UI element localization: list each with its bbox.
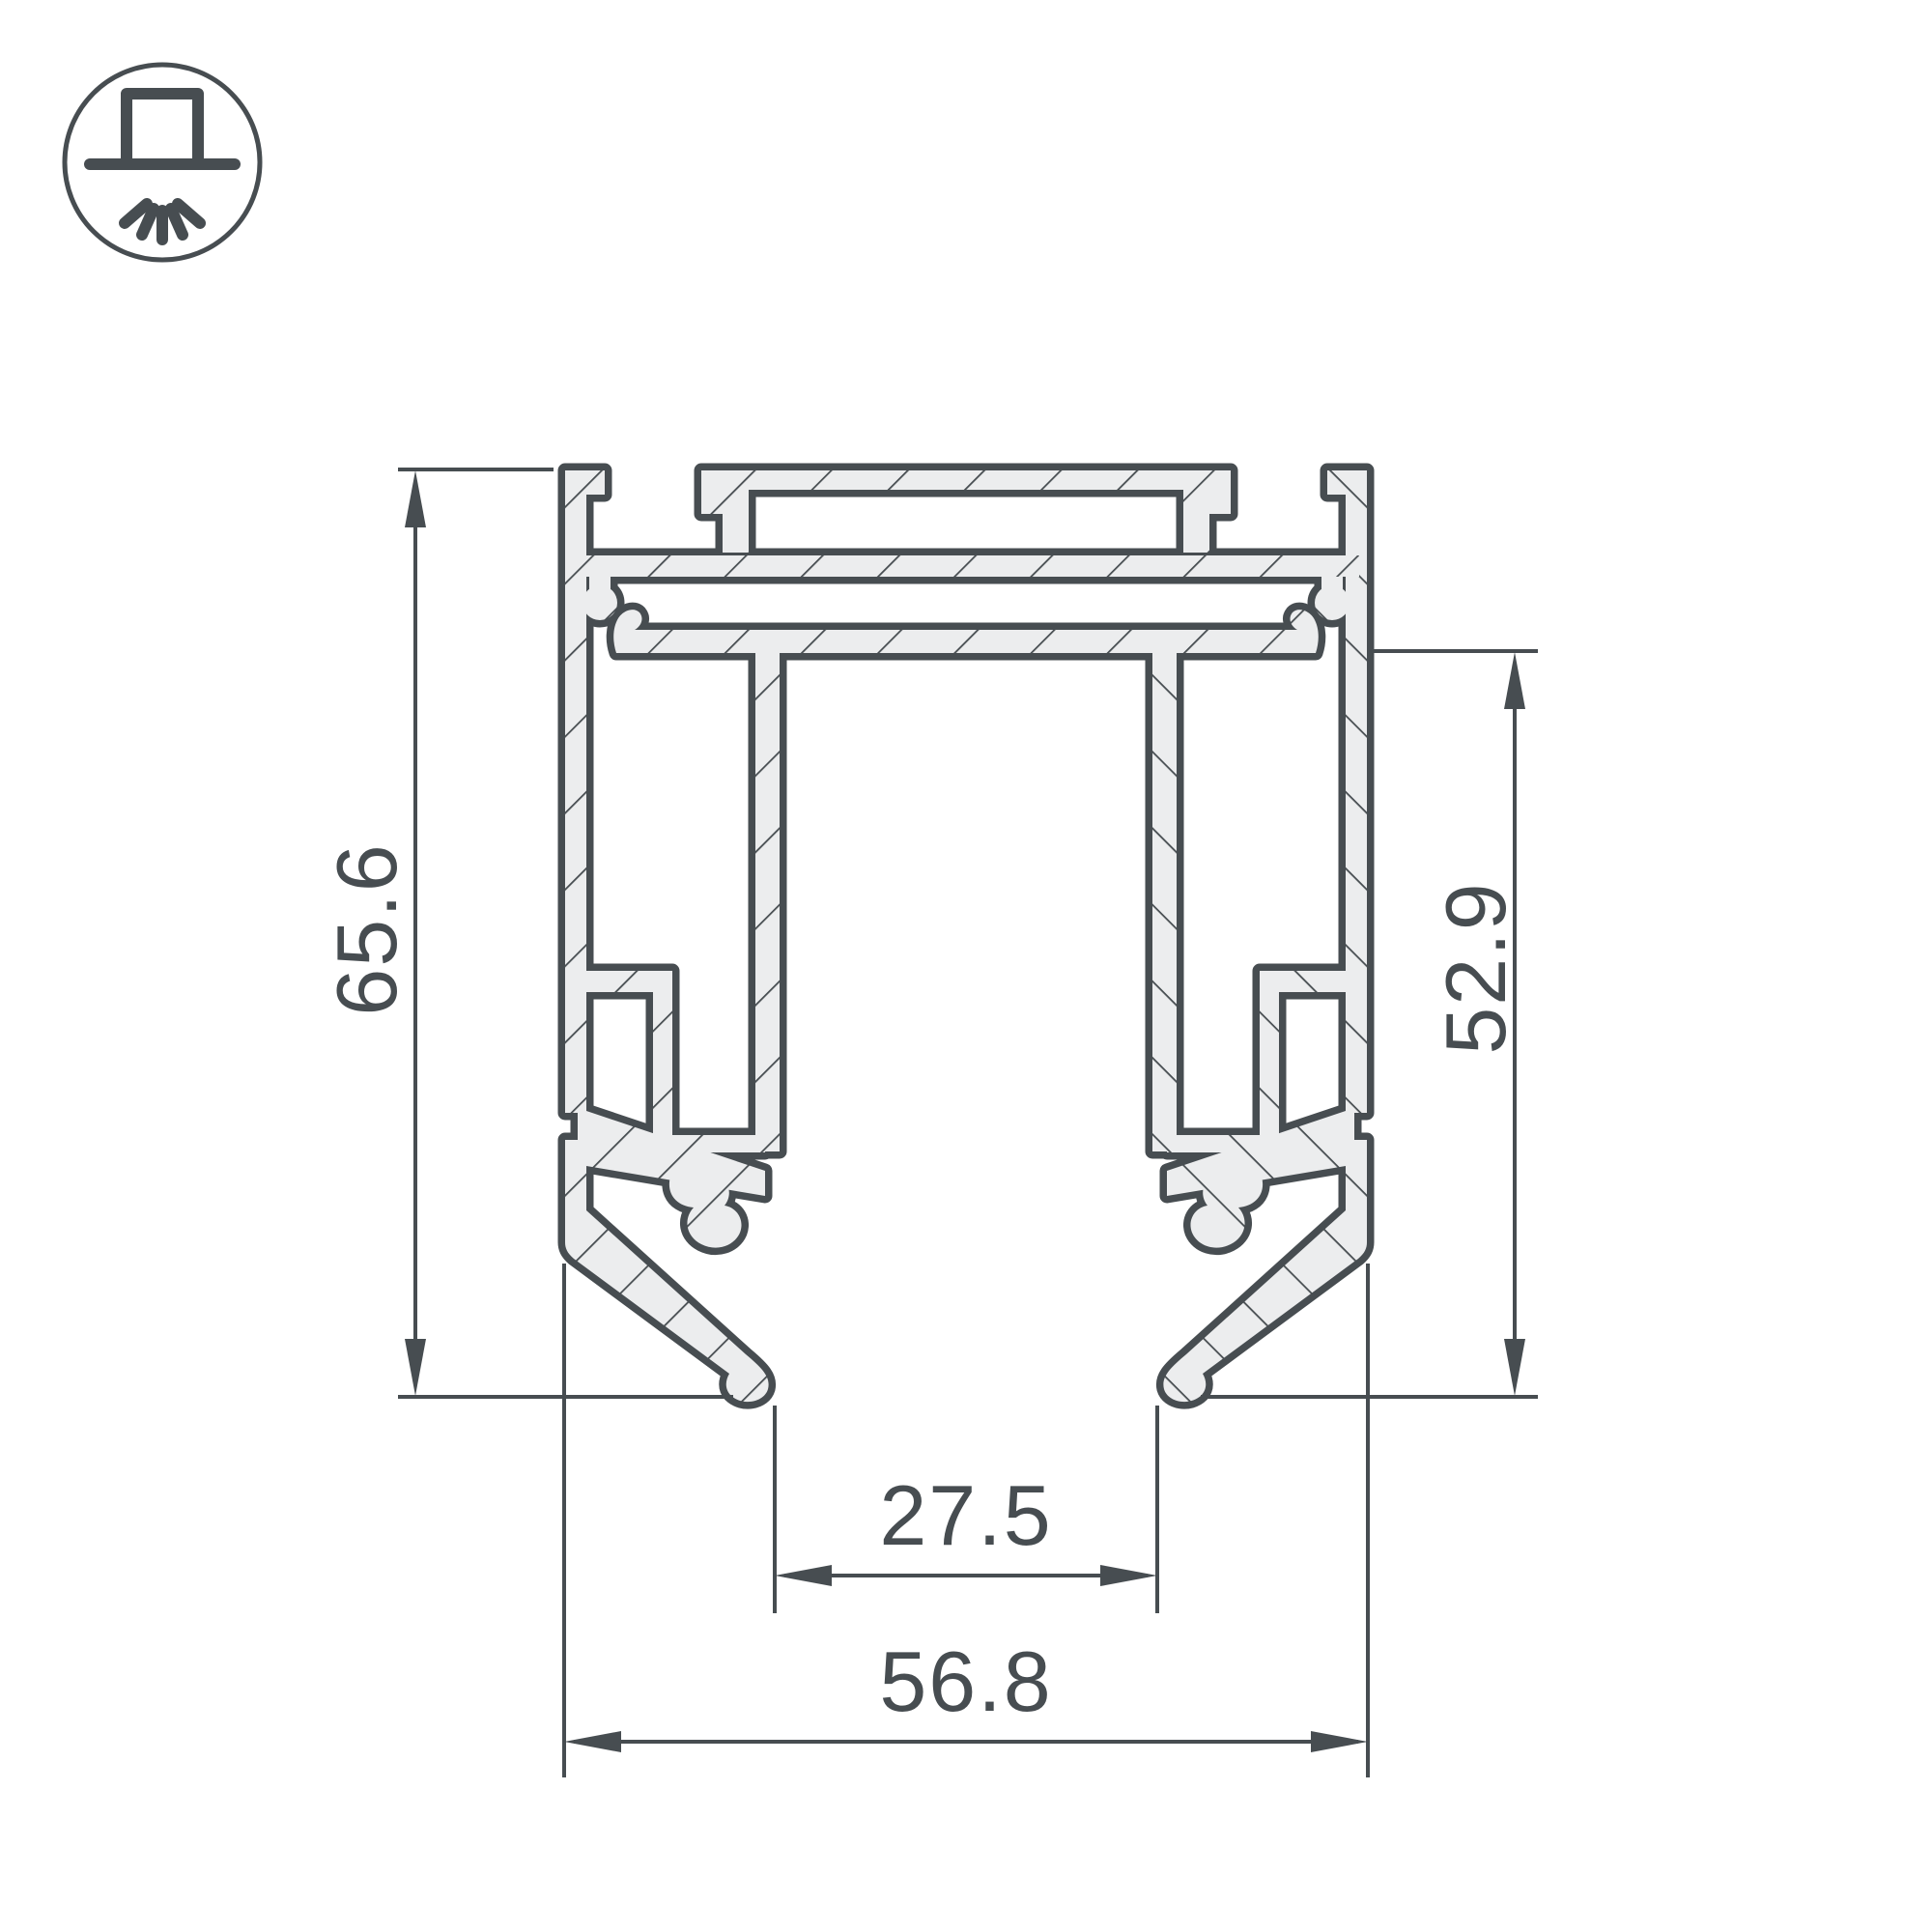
drawing-canvas: 65.6 52.9 27.5 56.8	[0, 0, 1932, 1932]
arrowhead-right	[1100, 1565, 1157, 1586]
arrowhead-down	[1504, 1339, 1525, 1396]
dimension-inner-width: 27.5	[775, 1406, 1157, 1613]
profile-outlines	[565, 470, 1367, 1402]
dimension-label-overall-height: 65.6	[319, 842, 414, 1015]
middle-plate-fill	[573, 555, 1359, 577]
dimension-label-inner-width: 27.5	[879, 1467, 1052, 1563]
arrowhead-up	[1504, 652, 1525, 709]
icon-light-rays	[125, 204, 200, 240]
profile-cross-section	[565, 470, 1367, 1402]
profile-hatching	[565, 470, 1367, 1402]
arrowhead-up	[405, 470, 426, 527]
dimension-overall-height: 65.6	[319, 469, 733, 1397]
technical-drawing: 65.6 52.9 27.5 56.8	[0, 0, 1932, 1932]
profile-right-half-fill	[1152, 470, 1367, 1402]
profile-left-half-fill	[565, 470, 780, 1402]
top-plate-fill	[701, 470, 1231, 553]
surface-mount-light-icon	[65, 65, 260, 260]
clip-plate-fill	[613, 610, 1319, 653]
dimension-label-overall-width: 56.8	[879, 1634, 1052, 1729]
dimension-label-inner-height: 52.9	[1428, 881, 1523, 1054]
arrowhead-down	[405, 1339, 426, 1396]
icon-fixture-square	[127, 94, 198, 164]
arrowhead-right	[1311, 1731, 1368, 1752]
arrowhead-left	[775, 1565, 832, 1586]
arrowhead-left	[564, 1731, 621, 1752]
